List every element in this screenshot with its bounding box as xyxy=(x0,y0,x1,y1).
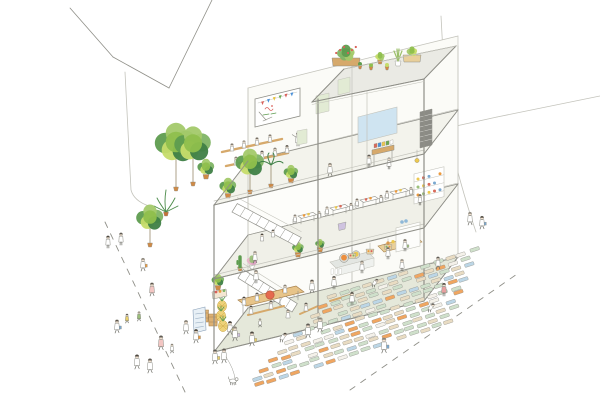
illustration-canvas xyxy=(0,0,600,400)
illustration-stage xyxy=(0,0,600,400)
